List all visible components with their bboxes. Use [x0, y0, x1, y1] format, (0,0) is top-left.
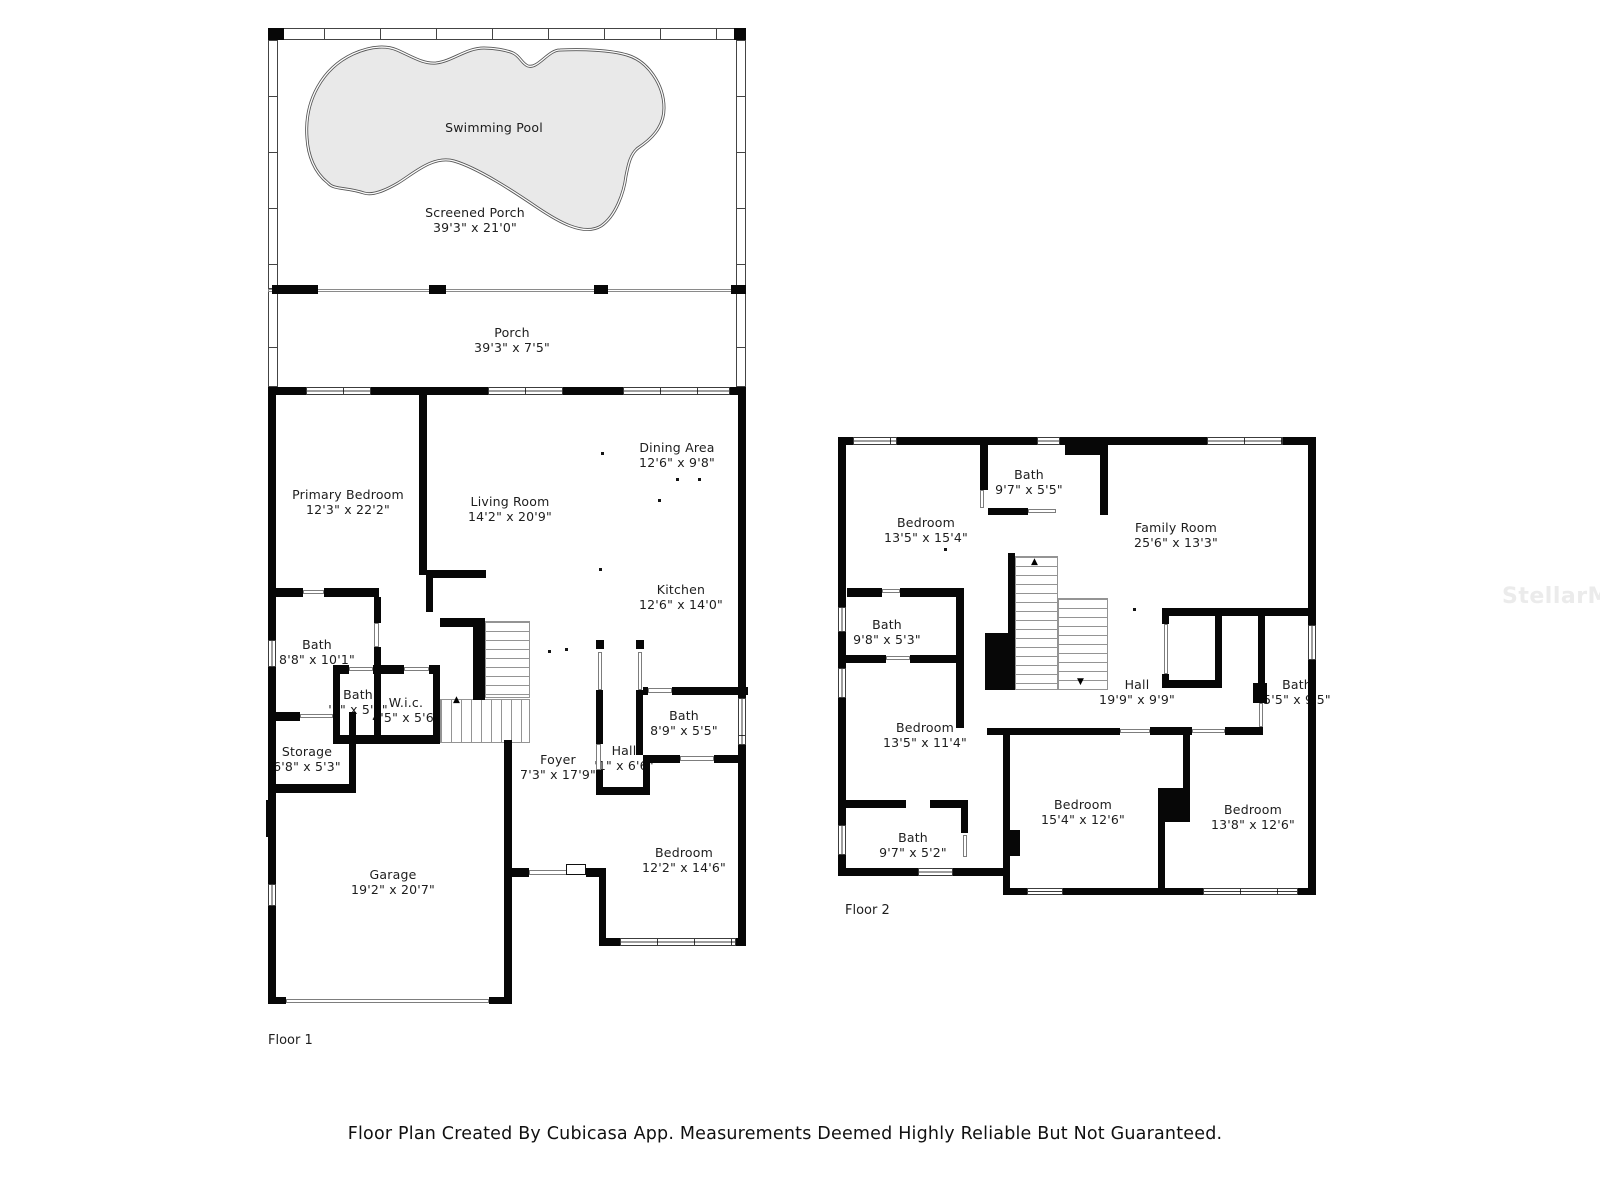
door-opening-floor1: [598, 652, 602, 690]
stair-down-arrow-floor2: ▼: [1077, 678, 1084, 687]
room-label-bedroom-f1: Bedroom12'2" x 14'6": [642, 845, 726, 875]
porch-post: [731, 285, 746, 294]
wall-segment-floor1: [371, 387, 488, 395]
room-label-screened-porch: Screened Porch39'3" x 21'0": [425, 205, 525, 235]
door-opening-floor1: [286, 999, 489, 1003]
porch-screen-wall: [268, 291, 278, 387]
wall-segment-floor1: [266, 800, 276, 837]
wall-segment-floor2: [900, 588, 960, 597]
wall-segment-floor2: [1003, 735, 1010, 868]
window-floor2: [1207, 437, 1283, 445]
wall-segment-floor2: [846, 800, 906, 808]
wall-segment-floor2: [1010, 888, 1027, 895]
door-opening-floor1: [638, 652, 642, 690]
room-label-swimming-pool: Swimming Pool: [445, 120, 543, 135]
porch-post: [594, 285, 608, 294]
ceiling-dot: [548, 650, 551, 653]
wall-segment-floor2: [987, 728, 1120, 735]
wall-segment-floor2: [1225, 727, 1263, 735]
room-label-bath2-f2: Bath9'8" x 5'3": [853, 617, 921, 647]
wall-segment-floor2: [838, 445, 846, 607]
wall-segment-floor1: [473, 618, 485, 700]
wall-segment-floor1: [373, 665, 404, 674]
wall-segment-floor1: [374, 674, 381, 735]
window-floor1: [738, 698, 746, 745]
room-label-foyer: Foyer7'3" x 17'9": [520, 752, 596, 782]
wall-segment-floor1: [738, 387, 746, 698]
wall-segment-floor1: [596, 690, 603, 744]
wall-segment-floor2: [838, 868, 918, 876]
wall-segment-floor2: [980, 445, 988, 490]
door-opening-floor1: [680, 756, 714, 761]
window-floor2: [838, 607, 846, 632]
door-opening-floor1: [374, 623, 379, 647]
door-opening-floor1: [303, 590, 324, 594]
door-opening-floor1: [300, 714, 333, 718]
window-floor1: [488, 387, 563, 395]
room-label-family-room: Family Room25'6" x 13'3": [1134, 520, 1218, 550]
window-floor1: [306, 387, 371, 395]
wall-segment-floor2: [1063, 888, 1203, 895]
window-floor1: [268, 884, 276, 906]
ceiling-dot: [601, 452, 604, 455]
door-opening-floor2: [886, 656, 910, 660]
wall-segment-floor1: [268, 997, 286, 1004]
wall-segment-floor1: [563, 387, 623, 395]
wall-segment-floor2: [985, 633, 1015, 690]
room-label-kitchen: Kitchen12'6" x 14'0": [639, 582, 723, 612]
wall-segment-floor1: [596, 787, 650, 795]
staircase-floor2-left: [1015, 556, 1058, 690]
wall-segment-floor1: [333, 665, 340, 735]
staircase-floor1-upper: [485, 621, 530, 698]
door-opening-floor1: [648, 688, 672, 693]
wall-segment-floor2: [1162, 616, 1169, 624]
wall-segment-floor1: [489, 997, 512, 1004]
wall-segment-floor1: [504, 740, 512, 1000]
wall-segment-floor1: [268, 784, 356, 793]
room-label-bath4-f2: Bath9'7" x 5'2": [879, 830, 947, 860]
window-floor2: [838, 825, 846, 855]
wall-segment-floor2: [1308, 437, 1316, 625]
wall-segment-floor1: [672, 687, 748, 695]
window-floor1: [623, 387, 730, 395]
wall-segment-floor2: [1308, 660, 1316, 895]
door-opening-floor2: [1120, 729, 1150, 733]
wall-segment-floor1: [738, 745, 746, 938]
door-opening-floor1: [404, 667, 429, 671]
ceiling-dot: [676, 478, 679, 481]
wall-segment-floor2: [1298, 888, 1316, 895]
room-label-primary-bedroom: Primary Bedroom12'3" x 22'2": [292, 487, 404, 517]
wall-segment-floor2: [930, 800, 963, 808]
wall-segment-floor1: [433, 665, 440, 744]
door-opening-floor2: [1028, 509, 1056, 513]
door-opening-floor1: [529, 870, 568, 875]
porch-screen-wall: [736, 40, 746, 289]
wall-segment-floor2: [1162, 680, 1222, 688]
window-floor2: [838, 668, 846, 698]
wall-segment-floor2: [897, 437, 1037, 445]
wall-segment-floor1: [636, 640, 644, 649]
wall-segment-floor1: [419, 395, 427, 575]
wall-segment-floor2: [1003, 868, 1010, 895]
window-floor2: [1203, 888, 1298, 895]
window-floor1: [620, 938, 736, 946]
wall-segment-floor2: [846, 655, 886, 663]
wall-segment-floor2: [1158, 788, 1190, 822]
porch-post: [268, 28, 284, 40]
wall-segment-floor2: [838, 437, 853, 445]
wall-segment-floor2: [1158, 822, 1165, 895]
window-floor2: [1308, 625, 1316, 660]
wall-segment-floor2: [1215, 616, 1222, 688]
wall-segment-floor1: [643, 755, 680, 763]
door-opening-floor2: [1164, 624, 1168, 674]
wall-segment-floor2: [1253, 683, 1267, 703]
wall-segment-floor2: [961, 800, 968, 833]
wall-segment-floor1: [268, 395, 276, 640]
wall-segment-floor2: [953, 868, 1008, 876]
room-label-bedroom-f2: Bedroom13'5" x 15'4": [884, 515, 968, 545]
wall-segment-floor2: [1008, 553, 1015, 633]
door-opening-floor2: [1192, 729, 1225, 733]
room-label-wic: W.i.c.4'5" x 5'6": [372, 695, 440, 725]
ceiling-dot: [599, 568, 602, 571]
wall-segment-floor1: [440, 618, 473, 627]
wall-segment-floor1: [374, 647, 381, 665]
room-label-bath3-f2: Bath5'5" x 9'5": [1263, 677, 1331, 707]
room-label-bath-f2: Bath9'7" x 5'5": [995, 467, 1063, 497]
window-floor1: [268, 640, 276, 667]
room-label-storage: Storage6'8" x 5'3": [273, 744, 341, 774]
room-label-garage: Garage19'2" x 20'7": [351, 867, 435, 897]
room-label-bath-f1: Bath8'8" x 10'1": [279, 637, 355, 667]
wall-segment-floor1: [426, 570, 486, 578]
staircase-floor1-lower: [440, 699, 530, 743]
wall-segment-floor1: [596, 640, 604, 649]
wall-segment-floor1: [349, 712, 356, 792]
room-label-bath3-f1: Bath8'9" x 5'5": [650, 708, 718, 738]
door-opening-floor2: [963, 835, 967, 857]
wall-segment-floor1: [268, 712, 300, 721]
floor-plan-canvas: Swimming Pool Screened Porch39'3" x 21'0…: [0, 0, 1600, 1200]
window-floor2: [918, 868, 953, 876]
porch-divider-line: [268, 289, 746, 292]
wall-segment-floor1: [276, 588, 303, 597]
porch-screen-wall: [736, 291, 746, 387]
wall-segment-floor1: [268, 906, 276, 1004]
wall-segment-floor2: [1162, 608, 1316, 616]
window-floor2: [853, 437, 897, 445]
stellar-mls-watermark: StellarMLS: [1502, 584, 1600, 609]
wall-segment-floor1: [426, 578, 433, 612]
floor1-tag: Floor 1: [268, 1033, 313, 1048]
porch-post: [734, 28, 746, 40]
wall-segment-floor1: [736, 938, 746, 946]
wall-segment-floor1: [599, 868, 606, 946]
wall-segment-floor2: [1065, 443, 1108, 455]
door-opening-floor1: [596, 744, 601, 770]
floor2-tag: Floor 2: [845, 903, 890, 918]
room-label-bedroom4-f2: Bedroom13'8" x 12'6": [1211, 802, 1295, 832]
wall-segment-floor2: [910, 655, 960, 663]
wall-segment-floor1: [374, 597, 381, 623]
window-floor2: [1037, 437, 1060, 445]
wall-segment-floor2: [838, 632, 846, 668]
window-floor2: [1027, 888, 1063, 895]
wall-segment-floor1: [636, 690, 643, 755]
ceiling-dot: [944, 548, 947, 551]
door-opening-floor2: [1259, 703, 1263, 727]
ceiling-dot: [658, 499, 661, 502]
room-label-dining-area: Dining Area12'6" x 9'8": [639, 440, 715, 470]
wall-segment-floor1: [268, 387, 306, 395]
porch-screen-wall: [268, 40, 278, 289]
room-label-porch: Porch39'3" x 7'5": [474, 325, 550, 355]
door-opening-floor2: [980, 490, 984, 508]
front-door-leaf: [566, 864, 586, 875]
porch-post: [272, 285, 318, 294]
wall-segment-floor1: [324, 588, 379, 597]
wall-segment-floor1: [586, 868, 599, 877]
porch-screen-wall: [268, 28, 746, 40]
footer-caption: Floor Plan Created By Cubicasa App. Meas…: [0, 1124, 1570, 1144]
porch-post: [429, 285, 446, 294]
wall-segment-floor2: [847, 588, 882, 597]
door-opening-floor1: [349, 667, 373, 671]
ceiling-dot: [698, 478, 701, 481]
room-label-living-room: Living Room14'2" x 20'9": [468, 494, 552, 524]
stair-up-arrow-floor2: ▲: [1031, 558, 1038, 567]
wall-segment-floor1: [511, 868, 529, 877]
room-label-bedroom3-f2: Bedroom15'4" x 12'6": [1041, 797, 1125, 827]
ceiling-dot: [565, 648, 568, 651]
wall-segment-floor2: [838, 698, 846, 825]
wall-segment-floor2: [1183, 728, 1190, 790]
wall-segment-floor1: [268, 667, 276, 884]
door-opening-floor2: [882, 589, 900, 593]
room-label-bedroom2-f2: Bedroom13'5" x 11'4": [883, 720, 967, 750]
wall-segment-floor2: [988, 508, 1028, 515]
ceiling-dot: [1133, 608, 1136, 611]
stair-up-arrow-floor1: ▲: [453, 696, 460, 705]
wall-segment-floor1: [714, 755, 746, 763]
